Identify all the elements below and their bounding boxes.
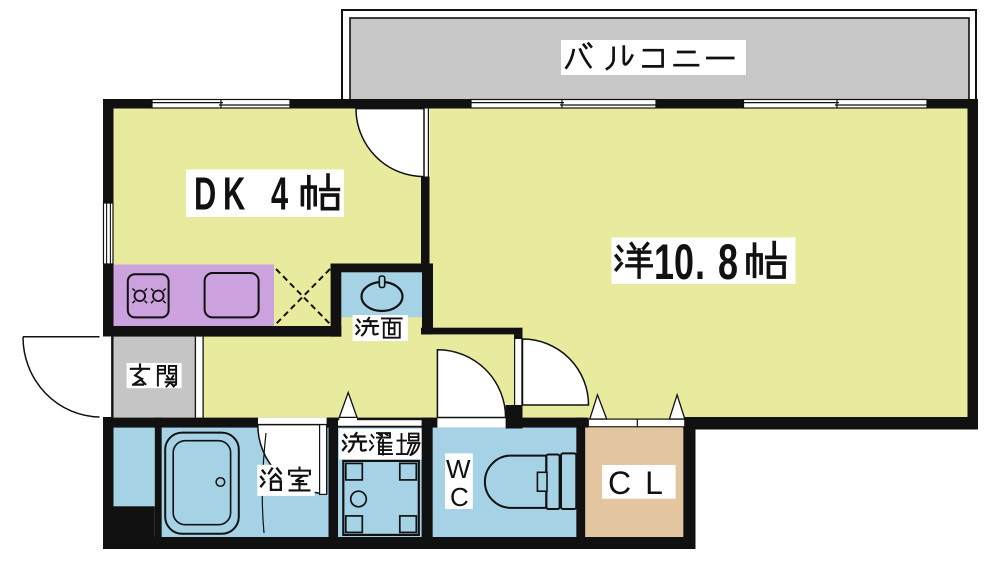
svg-text:D: D <box>194 170 216 221</box>
svg-text:K: K <box>223 170 245 221</box>
svg-text:CL: CL <box>608 465 677 501</box>
svg-text:10: 10 <box>654 235 694 290</box>
svg-text:4: 4 <box>271 170 288 221</box>
svg-text:.: . <box>695 235 705 290</box>
svg-text:C: C <box>450 482 469 512</box>
svg-text:8: 8 <box>718 235 738 290</box>
svg-text:W: W <box>446 454 471 484</box>
